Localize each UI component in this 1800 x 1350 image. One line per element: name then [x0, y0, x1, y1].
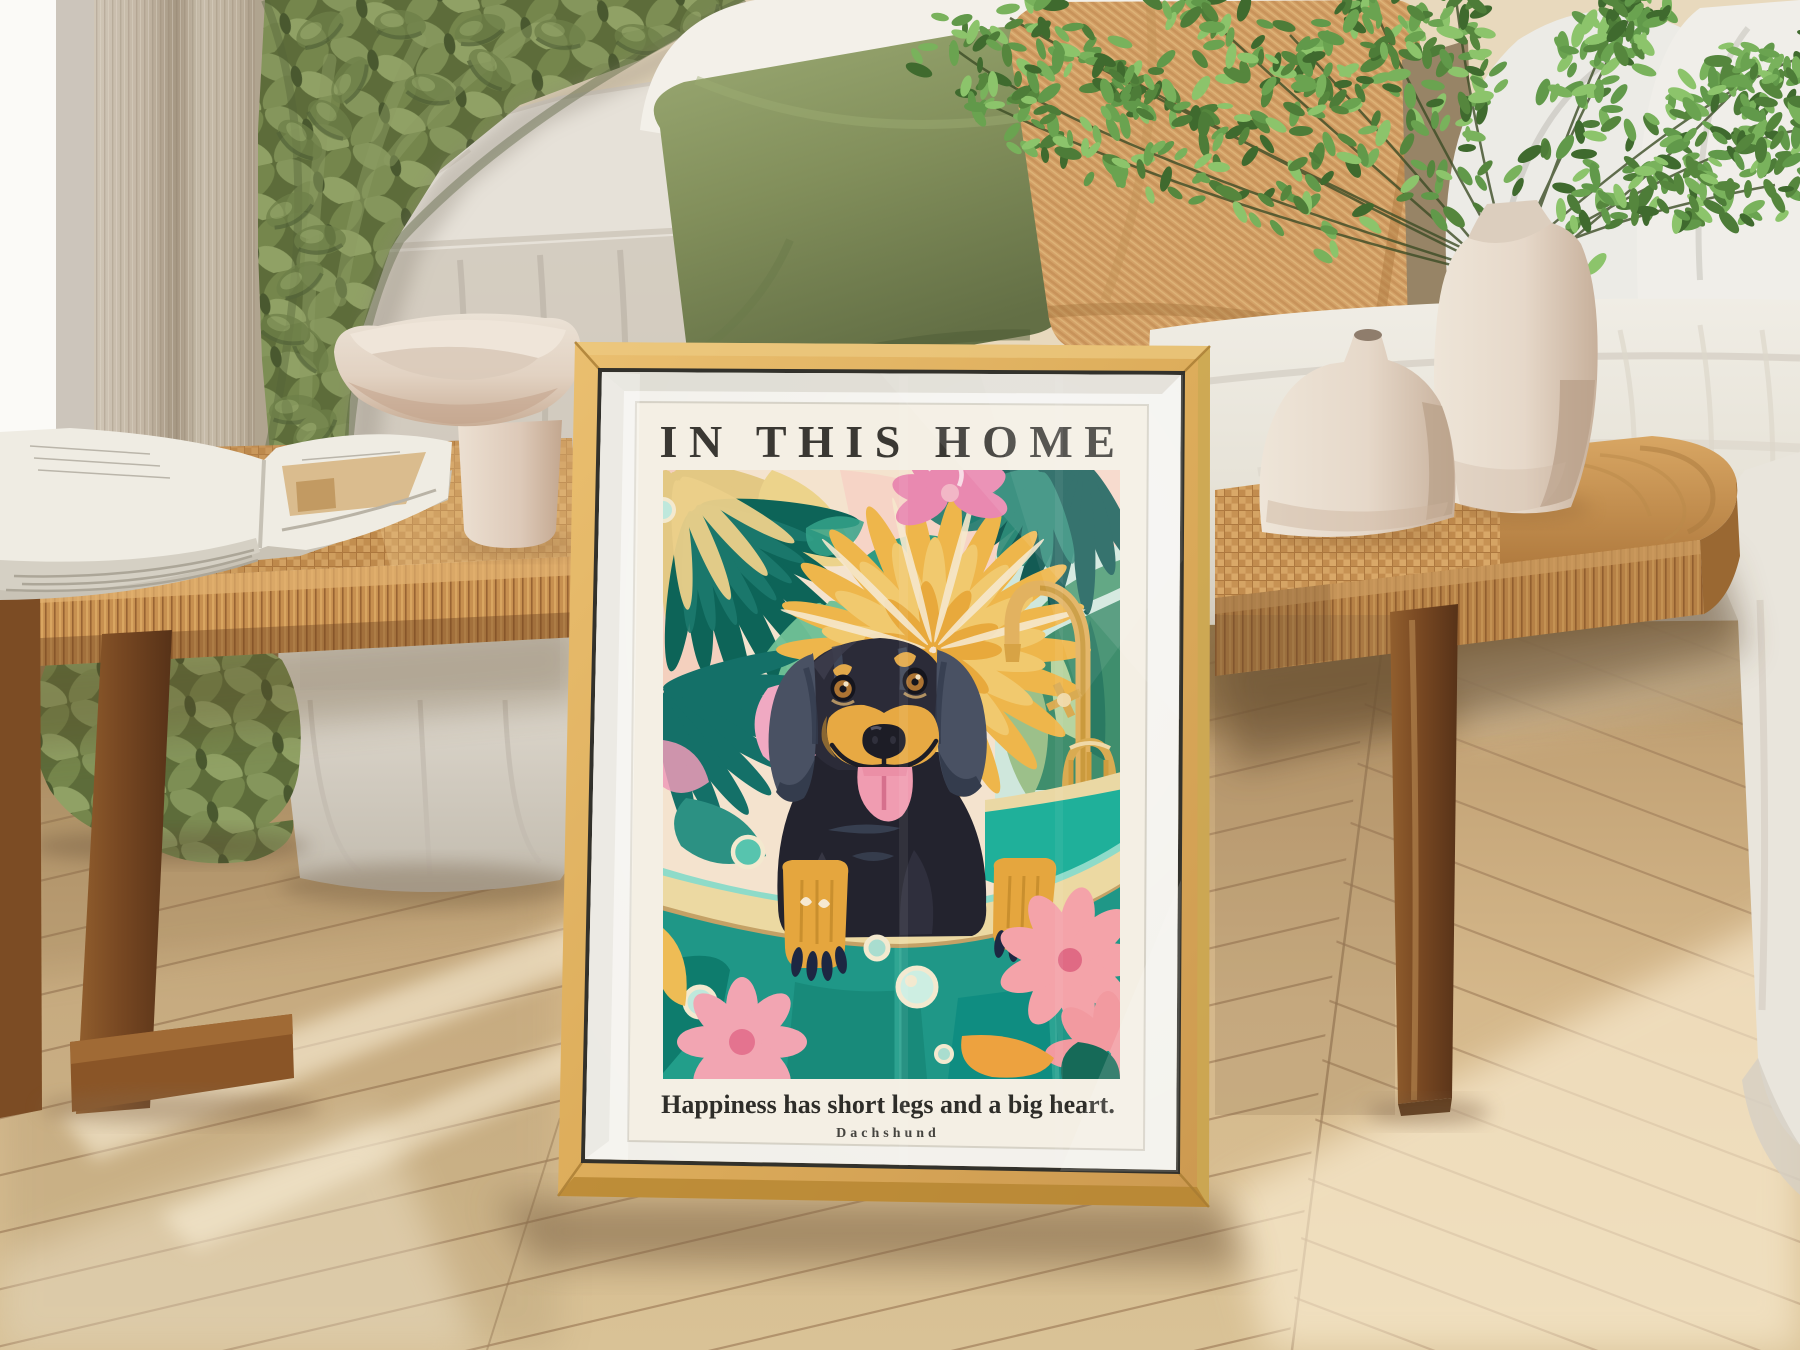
svg-text:Happiness has short legs and a: Happiness has short legs and a big heart…: [661, 1090, 1115, 1119]
svg-text:Dachshund: Dachshund: [836, 1126, 940, 1141]
